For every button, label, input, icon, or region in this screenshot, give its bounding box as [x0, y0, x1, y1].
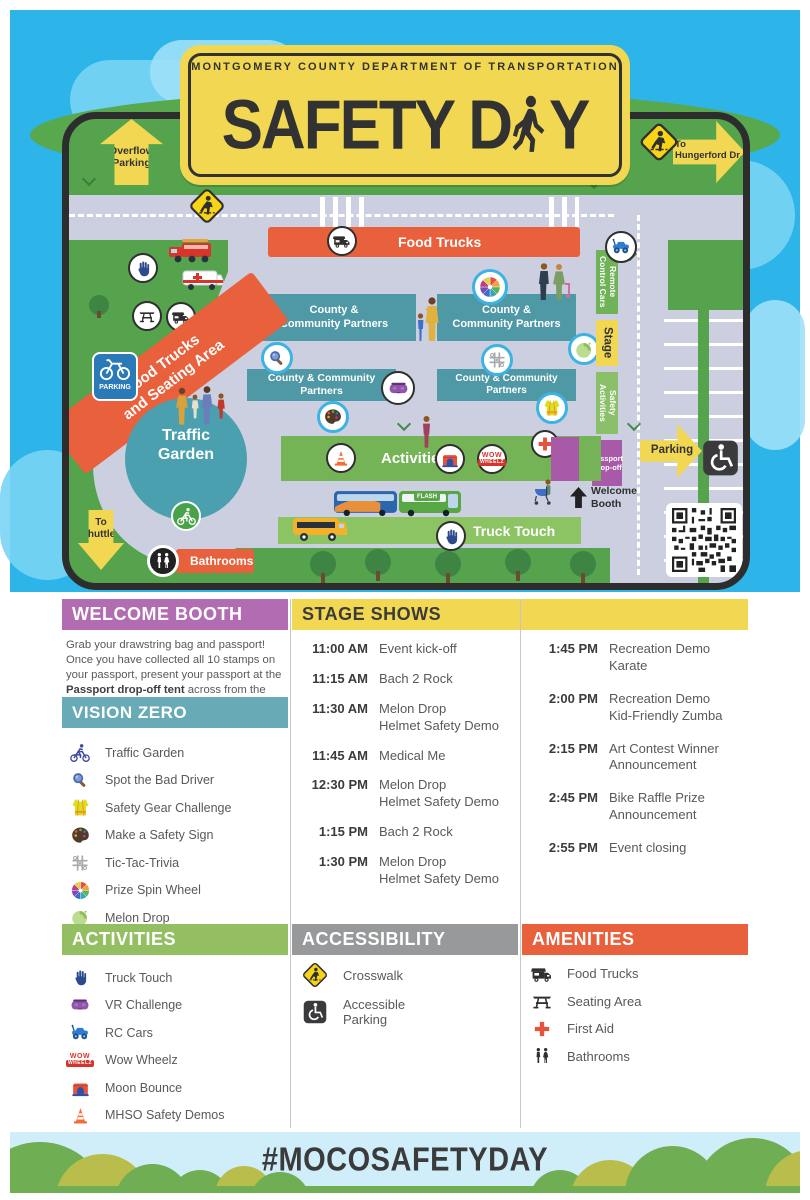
wow-wheelz-marker: WOWWHEELZ: [477, 444, 507, 474]
list-item-label: First Aid: [567, 1021, 614, 1036]
fire-truck-icon: [167, 237, 219, 265]
magnifier-icon: [70, 770, 90, 790]
list-item-label: Crosswalk: [343, 968, 403, 983]
walker-icon: [512, 93, 548, 158]
welcome-booth-label: Welcome Booth: [591, 485, 651, 510]
show-title: Bach 2 Rock: [379, 824, 453, 841]
show-title: Bike Raffle Prize Announcement: [609, 790, 705, 824]
list-item-label: Melon Drop: [105, 911, 170, 925]
list-item-label: Food Trucks: [567, 966, 639, 981]
list-item-label: Make a Safety Sign: [105, 828, 213, 842]
bathrooms-marker: [147, 545, 179, 577]
people-figures: [536, 262, 570, 302]
moon-bounce-marker: [435, 444, 465, 474]
show-title: Event kick-off: [379, 641, 457, 658]
truck-touch-marker: [436, 521, 466, 551]
food-trucks-banner: Food Trucks: [268, 227, 580, 257]
amenities-header: AMENITIES: [522, 924, 748, 955]
vision-zero-list: Traffic Garden Spot the Bad Driver Safet…: [68, 739, 288, 932]
first-aid-icon: [532, 1019, 552, 1039]
people-figures: [420, 415, 433, 449]
ambulance-icon: [182, 267, 224, 293]
list-item-label: Truck Touch: [105, 971, 172, 985]
list-item-label: VR Challenge: [105, 998, 182, 1012]
traffic-garden-label: Traffic Garden: [125, 426, 247, 464]
overflow-parking-sign: Overflow Parking: [100, 119, 163, 185]
bathrooms-icon: [153, 551, 173, 571]
show-time: 11:45 AM: [296, 748, 368, 765]
food-truck-icon: [332, 231, 352, 251]
flash-bus-label: FLASH: [414, 493, 440, 501]
people-figures: [175, 385, 231, 427]
palette-icon: [70, 825, 91, 846]
show-title: Art Contest Winner Announcement: [609, 741, 719, 775]
show-row: 1:45 PMRecreation Demo Karate: [526, 641, 746, 675]
palette-icon: [323, 407, 343, 427]
show-time: 2:00 PM: [526, 691, 598, 725]
vr-goggles-icon: [69, 994, 91, 1016]
show-title: Recreation Demo Karate: [609, 641, 710, 675]
wow-wheelz-icon: WOWWHEELZ: [66, 1053, 94, 1067]
hand-icon: [134, 259, 153, 278]
safety-activities-area: Safety Activities: [596, 372, 618, 434]
stage-label: Stage: [600, 327, 613, 358]
footer-banner: #MOCOSAFETYDAY: [10, 1132, 800, 1186]
show-time: 11:30 AM: [296, 701, 368, 735]
bike-parking-label: PARKING: [94, 384, 136, 391]
show-row: 11:15 AMBach 2 Rock: [296, 671, 516, 688]
list-item: MHSO Safety Demos: [68, 1102, 288, 1130]
road-centerline: [637, 215, 640, 575]
tree: [89, 295, 109, 318]
traffic-cone-icon: [331, 448, 351, 468]
stage-shows-col1: 11:00 AMEvent kick-off 11:15 AMBach 2 Ro…: [296, 641, 516, 901]
tree: [310, 551, 336, 583]
show-row: 11:00 AMEvent kick-off: [296, 641, 516, 658]
list-item: Make a Safety Sign: [68, 822, 288, 850]
spot-bad-driver-marker: [261, 342, 293, 374]
tic-tac-toe-icon: [487, 350, 507, 370]
show-row: 12:30 PMMelon Drop Helmet Safety Demo: [296, 777, 516, 811]
melon-icon: [574, 339, 595, 360]
show-row: 11:45 AMMedical Me: [296, 748, 516, 765]
crosswalk-sign-icon: [300, 960, 330, 990]
bike-rider-icon: [69, 742, 91, 764]
show-time: 2:55 PM: [526, 840, 598, 857]
show-time: 2:15 PM: [526, 741, 598, 775]
vr-goggles-icon: [387, 377, 410, 400]
safety-activities-label: Safety Activities: [597, 373, 617, 433]
vision-zero-header: VISION ZERO ACTIVITIES: [62, 697, 288, 728]
event-title-text: SAFETY D: [222, 85, 511, 165]
show-time: 1:30 PM: [296, 854, 368, 888]
crosswalk-sign-icon: [186, 185, 228, 227]
crosswalk-sign-icon: [636, 119, 682, 165]
list-item: RC Cars: [68, 1019, 288, 1047]
grass-sprout: [82, 172, 96, 186]
traffic-garden-marker: [171, 501, 201, 531]
show-row: 2:00 PMRecreation Demo Kid-Friendly Zumb…: [526, 691, 746, 725]
mhso-demos-marker: [326, 443, 356, 473]
show-title: Melon Drop Helmet Safety Demo: [379, 854, 499, 888]
list-item-label: Traffic Garden: [105, 746, 184, 760]
accessibility-header: ACCESSIBILITY: [292, 924, 518, 955]
food-truck-icon: [530, 962, 554, 986]
wow-wheelz-icon: WOWWHEELZ: [478, 452, 506, 466]
list-item: Crosswalk: [300, 958, 510, 992]
seating-marker: [132, 301, 162, 331]
show-title: Medical Me: [379, 748, 445, 765]
list-item-label: Prize Spin Wheel: [105, 883, 201, 897]
spin-wheel-icon: [70, 880, 91, 901]
list-item-label: MHSO Safety Demos: [105, 1108, 224, 1122]
show-title: Bach 2 Rock: [379, 671, 453, 688]
prize-wheel-marker: [472, 269, 508, 305]
tic-tac-toe-icon: [70, 853, 90, 873]
magnifier-icon: [267, 348, 287, 368]
welcome-text-part: Grab your drawstring bag and passport! O…: [66, 639, 281, 681]
moon-bounce-icon: [440, 449, 460, 469]
list-item-label: Spot the Bad Driver: [105, 773, 214, 787]
safety-day-poster: Overflow Parking Food Trucks County & Co…: [0, 0, 810, 1200]
show-time: 12:30 PM: [296, 777, 368, 811]
accessible-parking-icon: [700, 438, 741, 478]
truck-touch-marker: [128, 253, 158, 283]
title-sign: MONTGOMERY COUNTY DEPARTMENT OF TRANSPOR…: [180, 45, 630, 185]
bike-parking-sign: PARKING: [92, 352, 138, 401]
bathrooms-label: Bathrooms: [190, 554, 253, 568]
spin-wheel-icon: [478, 275, 502, 299]
show-row: 11:30 AMMelon Drop Helmet Safety Demo: [296, 701, 516, 735]
accessibility-list: Crosswalk Accessible Parking: [300, 958, 510, 1032]
rc-cars-marker: [605, 231, 637, 263]
list-item: Prize Spin Wheel: [68, 877, 288, 905]
stage-area: Stage: [596, 320, 618, 366]
show-title: Event closing: [609, 840, 686, 857]
show-time: 2:45 PM: [526, 790, 598, 824]
to-hungerford-sign: To Hungerford Dr.: [673, 121, 745, 183]
list-item-label: Safety Gear Challenge: [105, 801, 231, 815]
traffic-cone-icon: [70, 1105, 91, 1126]
list-item: Bathrooms: [530, 1043, 740, 1071]
list-item: Food Trucks: [530, 960, 740, 988]
safety-vest-icon: [542, 398, 562, 418]
show-row: 2:55 PMEvent closing: [526, 840, 746, 857]
show-time: 11:15 AM: [296, 671, 368, 688]
list-item-label: Tic-Tac-Trivia: [105, 856, 179, 870]
activities-header: ACTIVITIES: [62, 924, 288, 955]
welcome-text-bold: Passport drop-off tent: [66, 684, 185, 696]
list-item: Traffic Garden: [68, 739, 288, 767]
picnic-table-icon: [137, 306, 157, 326]
rc-car-icon: [69, 1022, 91, 1044]
tree: [570, 551, 596, 583]
to-hungerford-label: To Hungerford Dr.: [673, 139, 745, 162]
list-item-label: Seating Area: [567, 994, 641, 1009]
show-row: 2:45 PMBike Raffle Prize Announcement: [526, 790, 746, 824]
safety-sign-marker: [317, 401, 349, 433]
show-time: 11:00 AM: [296, 641, 368, 658]
hand-icon: [442, 527, 461, 546]
welcome-booth-header: WELCOME BOOTH: [62, 599, 288, 630]
tree: [505, 549, 531, 581]
event-title: SAFETY DY: [180, 69, 630, 181]
school-bus-icon: [292, 513, 348, 543]
welcome-booth-tent: [551, 437, 579, 481]
show-row: 1:15 PMBach 2 Rock: [296, 824, 516, 841]
list-item: Spot the Bad Driver: [68, 767, 288, 795]
bike-icon: [99, 357, 131, 381]
show-title: Melon Drop Helmet Safety Demo: [379, 701, 499, 735]
safety-vest-icon: [70, 797, 91, 818]
cloud: [745, 300, 805, 450]
list-item-label: Moon Bounce: [105, 1081, 182, 1095]
activities-list: Truck Touch VR Challenge RC Cars WOWWHEE…: [68, 964, 288, 1129]
qr-code-icon: [671, 508, 737, 572]
food-trucks-banner-label: Food Trucks: [398, 234, 481, 250]
rc-car-icon: [610, 236, 632, 258]
event-hashtag: #MOCOSAFETYDAY: [10, 1142, 800, 1180]
food-truck-banner-marker: [327, 226, 357, 256]
stroller-person-icon: [533, 477, 555, 507]
people-figures: [415, 296, 441, 342]
show-title: Melon Drop Helmet Safety Demo: [379, 777, 499, 811]
parking-label: Parking: [642, 444, 702, 456]
list-item: Moon Bounce: [68, 1074, 288, 1102]
tree: [365, 549, 391, 581]
tree: [435, 551, 461, 583]
list-item: Truck Touch: [68, 964, 288, 992]
stage-shows-col2: 1:45 PMRecreation Demo Karate 2:00 PMRec…: [526, 641, 746, 870]
truck-touch-area-label: Truck Touch: [473, 523, 555, 539]
list-item: First Aid: [530, 1015, 740, 1043]
bathrooms-icon: [532, 1046, 552, 1066]
list-item: Safety Gear Challenge: [68, 794, 288, 822]
welcome-text-part: across from the: [185, 684, 266, 696]
show-row: 2:15 PMArt Contest Winner Announcement: [526, 741, 746, 775]
accessible-parking-icon: [302, 999, 328, 1025]
list-item-label: Bathrooms: [567, 1049, 630, 1064]
list-item: Accessible Parking: [300, 992, 510, 1032]
bike-rider-icon: [176, 506, 197, 527]
list-item: VR Challenge: [68, 992, 288, 1020]
event-title-text: Y: [549, 85, 588, 165]
partner-booth: County & Community Partners: [247, 369, 396, 401]
column-divider: [520, 599, 521, 1128]
list-item-label: Accessible Parking: [343, 997, 405, 1027]
list-item: Seating Area: [530, 988, 740, 1016]
overflow-parking-label: Overflow Parking: [100, 145, 163, 169]
list-item-label: Wow Wheelz: [105, 1053, 178, 1067]
show-time: 1:45 PM: [526, 641, 598, 675]
vr-challenge-marker: [381, 371, 415, 405]
safety-gear-marker: [536, 392, 568, 424]
list-item: Tic-Tac-Trivia: [68, 849, 288, 877]
show-time: 1:15 PM: [296, 824, 368, 841]
bathrooms-area: Bathrooms: [176, 549, 254, 573]
tic-tac-trivia-marker: [481, 344, 513, 376]
amenities-list: Food Trucks Seating Area First Aid Bathr…: [530, 960, 740, 1070]
picnic-table-icon: [530, 989, 554, 1013]
footer-green-strip: [10, 1186, 800, 1193]
moon-bounce-icon: [70, 1077, 91, 1098]
show-row: 1:30 PMMelon Drop Helmet Safety Demo: [296, 854, 516, 888]
hand-icon: [71, 968, 90, 987]
list-item-label: RC Cars: [105, 1026, 153, 1040]
list-item: WOWWHEELZWow Wheelz: [68, 1047, 288, 1075]
qr-code: [666, 503, 742, 577]
show-title: Recreation Demo Kid-Friendly Zumba: [609, 691, 722, 725]
column-divider: [290, 599, 291, 1128]
